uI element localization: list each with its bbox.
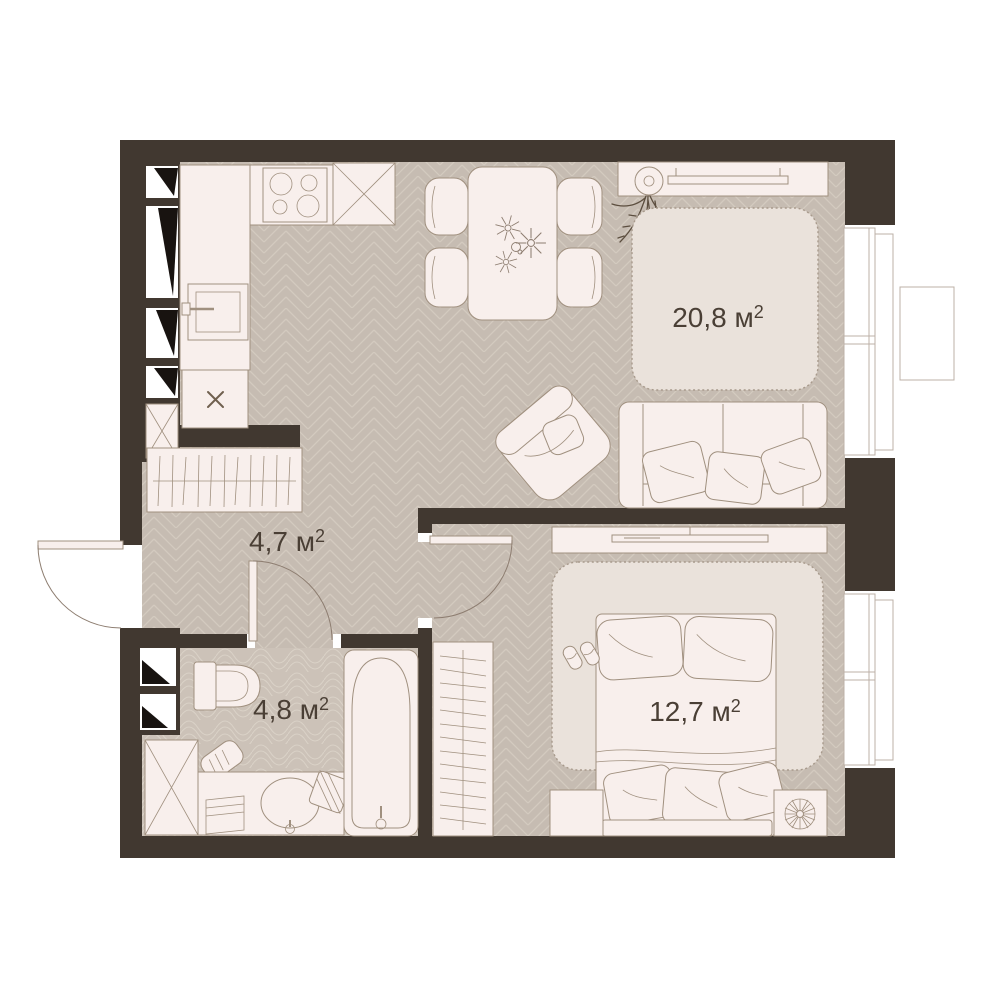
wall-bottom xyxy=(120,836,895,858)
entrance-door-swing xyxy=(38,545,121,628)
toilet-tank xyxy=(194,662,216,710)
bedroom-door-notch-bottom xyxy=(418,618,432,628)
bathroom-area-label: 4,8 м2 xyxy=(253,694,329,725)
floor-plan-canvas: 20,8 м2 4,7 м2 4,8 м2 12,7 м2 xyxy=(0,0,1000,1000)
floor-plan-page: 20,8 м2 4,7 м2 4,8 м2 12,7 м2 xyxy=(0,0,1000,1000)
fan-decor xyxy=(785,799,815,829)
bedroom-door-leaf xyxy=(430,536,512,544)
floor-bedroom-door-pass xyxy=(418,542,432,618)
hallway xyxy=(147,448,302,512)
bedroom-window-sill xyxy=(875,600,893,760)
nightstand-left xyxy=(550,790,603,836)
bathroom-door-notch-right xyxy=(333,634,341,648)
dining-chair-2 xyxy=(425,248,468,307)
living-rug xyxy=(632,208,818,390)
wall-top xyxy=(120,140,895,162)
wall-left-upper xyxy=(120,140,142,545)
living-window-sill xyxy=(875,234,893,450)
bedroom-area-label: 12,7 м2 xyxy=(649,696,741,727)
exterior-ac-unit xyxy=(900,287,954,380)
floor-bathroom-door-pass xyxy=(255,634,333,648)
living-window-frame xyxy=(844,228,875,455)
wall-bathroom-top-left xyxy=(145,634,247,648)
living-kitchen-area-label: 20,8 м2 xyxy=(672,302,764,333)
tv-living xyxy=(668,176,788,184)
entrance-door-leaf xyxy=(38,541,123,549)
dining-chair-1 xyxy=(425,178,468,235)
wall-living-bedroom xyxy=(418,508,845,524)
kitchen-counter-left xyxy=(180,165,250,370)
wall-bedroom-vertical-top xyxy=(418,508,432,533)
wall-bedroom-vertical-bottom xyxy=(418,628,432,836)
sofa xyxy=(619,402,827,508)
bathroom-door-leaf xyxy=(249,561,257,641)
entrance-opening xyxy=(120,545,142,628)
sink-faucet-base xyxy=(182,303,190,315)
bed-footer xyxy=(602,820,772,836)
hallway-area-label: 4,7 м2 xyxy=(249,526,325,557)
wall-bathroom-top-right xyxy=(341,634,418,648)
stove xyxy=(263,168,327,222)
